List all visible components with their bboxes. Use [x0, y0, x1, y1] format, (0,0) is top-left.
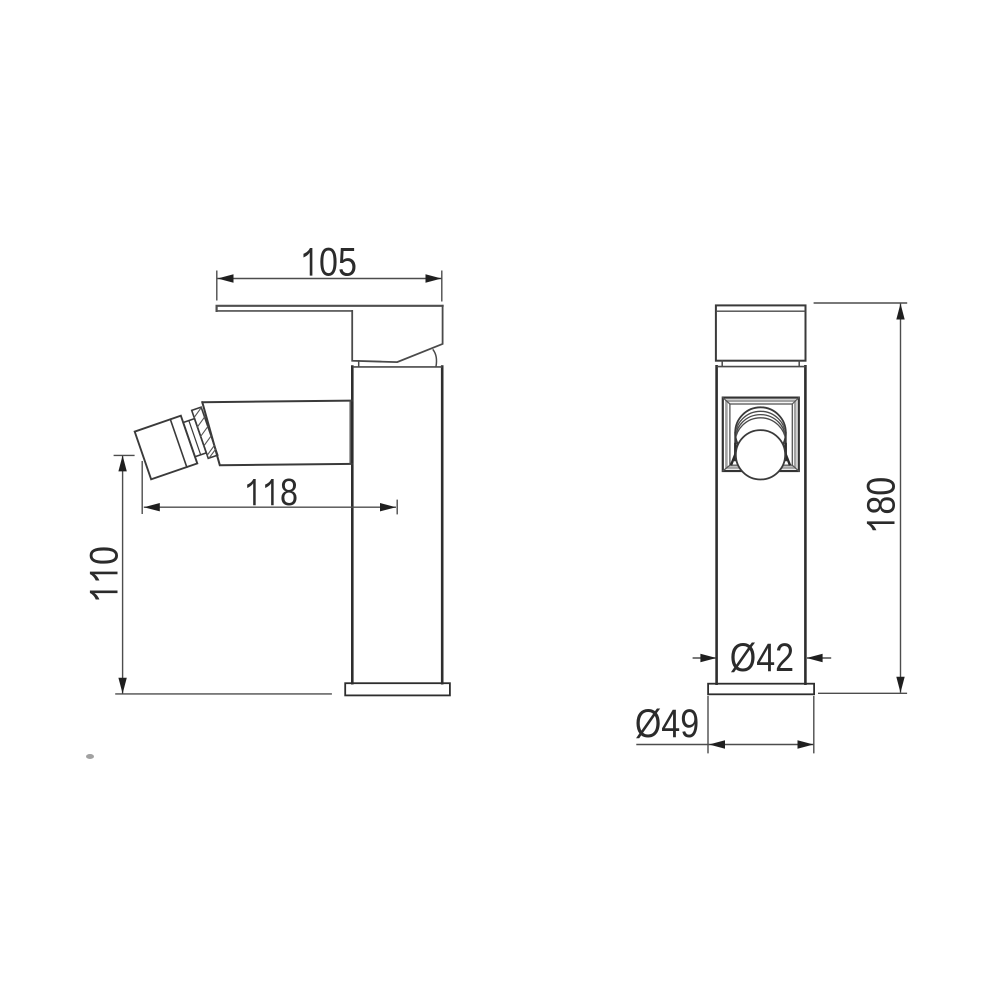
svg-text:Ø49: Ø49 [635, 700, 699, 745]
svg-text:Ø42: Ø42 [730, 634, 794, 679]
svg-text:05: 05 [319, 239, 357, 284]
svg-text:8: 8 [280, 472, 298, 514]
svg-text:0: 0 [81, 546, 126, 565]
svg-text:80: 80 [858, 477, 903, 515]
